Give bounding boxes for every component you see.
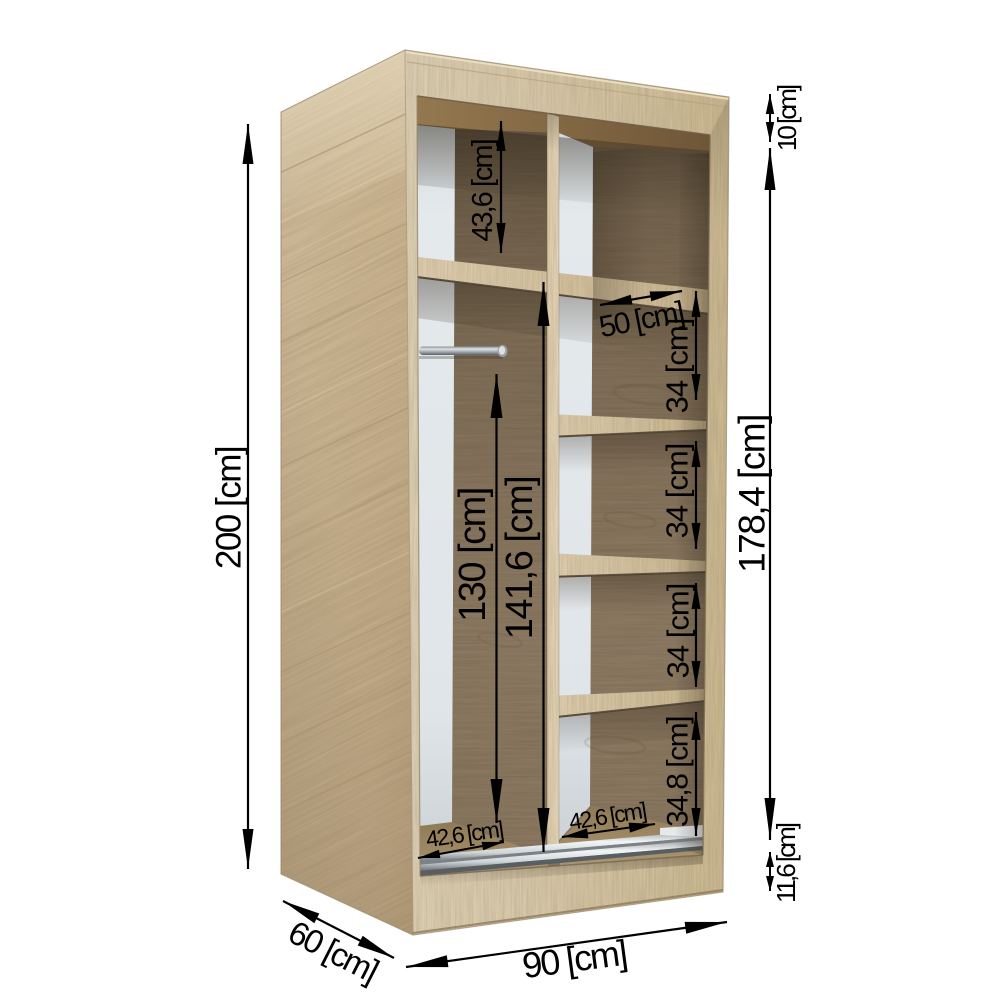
svg-text:34 [cm]: 34 [cm] <box>660 319 695 414</box>
svg-text:43,6 [cm]: 43,6 [cm] <box>467 140 499 241</box>
svg-text:10 [cm]: 10 [cm] <box>772 85 802 151</box>
svg-text:11,6 [cm]: 11,6 [cm] <box>771 823 801 903</box>
svg-text:34,8 [cm]: 34,8 [cm] <box>662 717 695 827</box>
svg-text:34 [cm]: 34 [cm] <box>661 584 696 679</box>
svg-text:178,4 [cm]: 178,4 [cm] <box>732 415 773 573</box>
svg-text:130 [cm]: 130 [cm] <box>452 488 494 622</box>
svg-text:90 [cm]: 90 [cm] <box>520 932 629 986</box>
svg-text:60 [cm]: 60 [cm] <box>283 913 384 989</box>
svg-text:200 [cm]: 200 [cm] <box>210 447 249 569</box>
svg-text:141,6 [cm]: 141,6 [cm] <box>499 477 541 639</box>
svg-text:34 [cm]: 34 [cm] <box>660 444 695 539</box>
